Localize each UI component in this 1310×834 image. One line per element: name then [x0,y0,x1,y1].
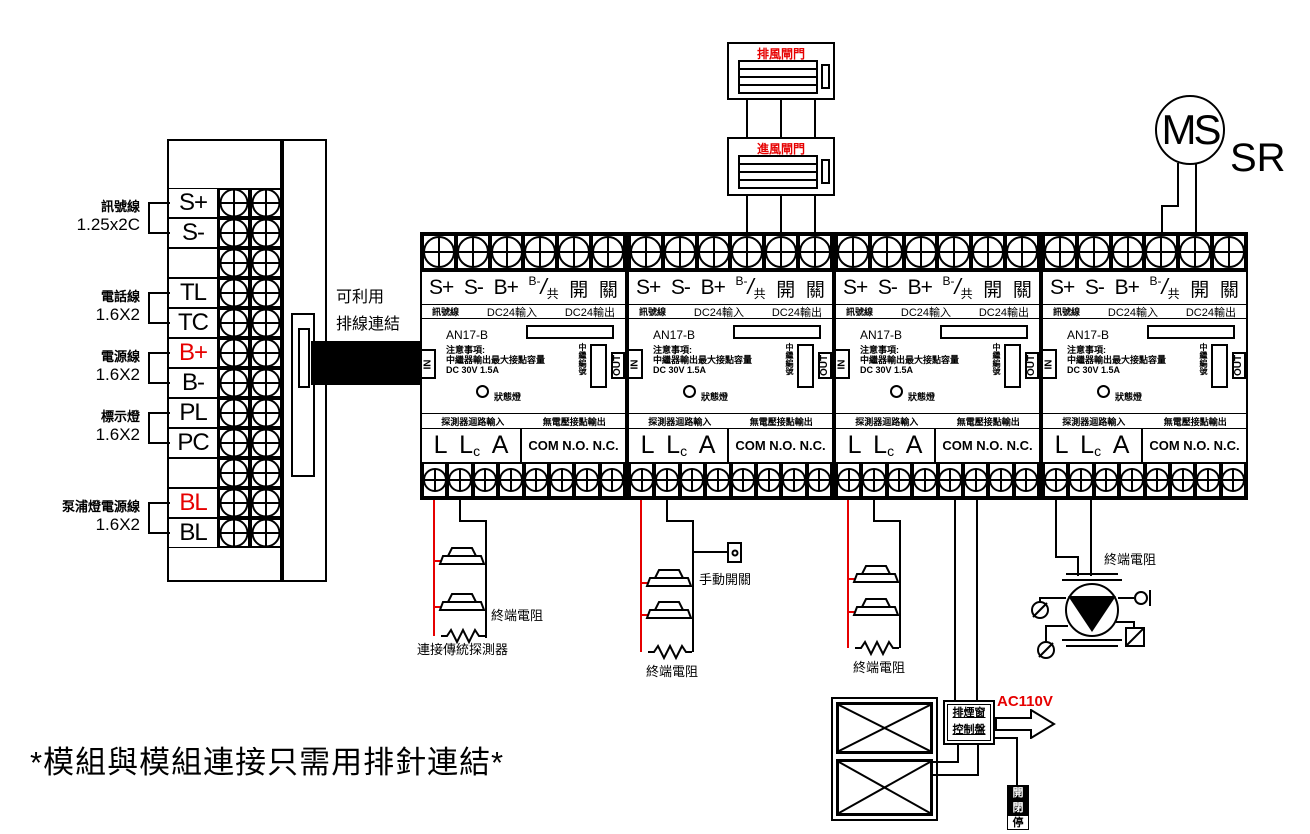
contact-terminals: COM N.O. N.C. [936,429,1039,462]
terminal-label: B+ [494,276,518,300]
conventional-detectors-label: 連接傳統探測器 [417,639,508,658]
v [780,238,782,266]
v [975,470,977,490]
status-led [890,385,903,398]
relay-module: S+ S- B+ B-/共 開 關 訊號線 DC24輸入 DC24輸出 AN17… [420,232,627,500]
v [233,251,235,276]
v [1059,238,1061,266]
module-bottom-terminal-labels: L Lc A COM N.O. N.C. [1043,428,1246,462]
damper-handle [821,64,830,89]
span: A [492,431,509,460]
gsize: 1.6X2 [28,365,140,385]
screw-terminal [250,368,282,398]
subc: c [887,443,894,459]
screw-terminal [250,278,282,308]
v [920,238,922,266]
screw-terminal [218,248,250,278]
screw-terminal [680,462,705,498]
module-slot [1147,325,1235,339]
control-panel-line2: 控制盤 [948,722,990,739]
terminal-label: BL [168,488,218,518]
v [535,470,537,490]
screw-terminal [250,428,282,458]
resistor-symbol [855,639,899,657]
v [1105,470,1107,490]
screw-terminal [250,338,282,368]
v [472,238,474,266]
out-port: OUT [1025,352,1039,379]
screw-terminal [250,398,282,428]
fn: B- [528,274,540,288]
rot: IN [1044,359,1055,369]
screw-terminal [1111,234,1145,270]
dc24-in-label: DC24輸入 [694,304,744,320]
module-bottom-sublabels: 探測器迴路輸入 無電壓接點輸出 [422,413,625,428]
module-bottom-sublabels: 探測器迴路輸入 無電壓接點輸出 [1043,413,1246,428]
div: 注意事項: [653,345,752,355]
gname: 標示燈 [28,406,140,425]
module-sublabels: 訊號線 DC24輸入 DC24輸出 [1043,304,1246,319]
wire [780,196,782,232]
path [854,566,898,582]
status-led [1097,385,1110,398]
wire [148,352,150,384]
wire [148,202,170,204]
terminal-label: S+ [1050,276,1074,300]
motor-type-label: SR [1230,136,1286,181]
b [740,76,816,78]
screw-terminal [591,234,625,270]
v [987,238,989,266]
open-button-label: 開 [1007,785,1029,800]
terminal-label: 開 [1190,275,1209,302]
wire-group-phone: 電話線1.6X2 [28,286,140,325]
smoke-detector-symbol [645,596,693,620]
path [647,570,691,586]
terminal-label: 關 [1013,275,1032,302]
side-panel-slot-inner [298,328,310,388]
v [953,238,955,266]
gname: 電話線 [28,286,140,305]
terminal-label-common: B-/共 [1149,274,1179,302]
screw-terminal [218,188,250,218]
screw-terminal [218,278,250,308]
v [265,491,267,516]
ribbon-cable [311,341,420,385]
screw-terminal [456,234,490,270]
module-bottom-terminal-labels: L Lc A COM N.O. N.C. [836,428,1039,462]
screw-terminal [1195,462,1220,498]
screw-terminal [781,462,806,498]
v [607,238,609,266]
terminal-label: TC [168,308,218,338]
loop-terminals: L Lc A [1043,429,1143,462]
dry-contact-output-label: 無電壓接點輸出 [524,415,626,428]
v [265,401,267,426]
wire [873,520,901,522]
polyline [855,642,899,654]
screw-terminal [1014,462,1039,498]
module-bottom-terminal-strip [629,462,832,498]
status-led [683,385,696,398]
loop-terminals: L Lc A [629,429,729,462]
screw-terminal [870,234,904,270]
screw-terminal [218,338,250,368]
v [1228,238,1230,266]
div: 中繼器輸出最大接點容量 [446,355,545,365]
voltage-label: AC110V [997,693,1053,710]
screw-terminal [1170,462,1195,498]
wire [148,412,150,444]
wire [148,382,170,384]
ribbon-note-line1: 可利用 [336,283,384,307]
wire [1016,737,1018,785]
wire [148,412,170,414]
wire [148,322,170,324]
v [873,470,875,490]
wire [873,500,875,522]
screw-terminal [473,462,498,498]
rot: OUT [613,355,624,376]
terminal-label: S- [1085,276,1104,300]
screw-terminal [218,398,250,428]
div: DC 30V 1.5A [860,365,959,375]
gsize: 1.6X2 [28,425,140,445]
wire [995,737,1018,739]
fn: B- [1149,274,1161,288]
detector-loop-input-label: 探測器迴路輸入 [836,415,938,428]
relay-number-slot [1211,344,1228,388]
module-note: 注意事項: 中繼器輸出最大接點容量 DC 30V 1.5A [1067,345,1166,375]
wire [1055,556,1079,558]
signal-line-label: 訊號線 [846,305,873,318]
div: 注意事項: [1067,345,1166,355]
subc: c [473,443,480,459]
v [1232,470,1234,490]
module-sublabels: 訊號線 DC24輸入 DC24輸出 [422,304,625,319]
power-arrow [995,709,1057,739]
out-port: OUT [818,352,832,379]
terminal-label-common: B-/共 [735,274,765,302]
module-bottom-terminal-labels: L Lc A COM N.O. N.C. [422,428,625,462]
smoke-detector-symbol [438,588,486,612]
svg [839,705,930,751]
smoke-detector-symbol [438,542,486,566]
screw-terminal [988,462,1013,498]
wire [976,500,978,700]
v [438,238,440,266]
module-slot [733,325,821,339]
b [740,84,816,86]
v [506,238,508,266]
relay-module: S+ S- B+ B-/共 開 關 訊號線 DC24輸入 DC24輸出 AN17… [834,232,1041,500]
wire [1195,163,1197,232]
terminal-label: B+ [168,338,218,368]
v [924,470,926,490]
screw-terminal [422,234,456,270]
screw-terminal [490,234,524,270]
terminal-label: TL [168,278,218,308]
module-terminal-labels: S+ S- B+ B-/共 開 關 [422,270,625,304]
module-slot [526,325,614,339]
screw-terminal [887,462,912,498]
exhaust-damper: 排風閘門 [727,42,835,100]
wire [666,520,694,522]
v [1025,470,1027,490]
manual-switch-symbol [727,542,742,563]
wire [954,500,956,700]
relay-number-slot [590,344,607,388]
screw-terminal [218,458,250,488]
terminal-label: PC [168,428,218,458]
screw-terminal [218,428,250,458]
dc24-out-label: DC24輸出 [979,304,1029,320]
smoke-detector-symbol [645,564,693,588]
polyline [648,646,692,658]
terminal-label: S- [878,276,897,300]
contact-terminals: COM N.O. N.C. [1143,429,1246,462]
stop-button-label: 停 [1007,815,1029,830]
v [265,281,267,306]
screw-terminal [971,234,1005,270]
module-sublabels: 訊號線 DC24輸入 DC24輸出 [836,304,1039,319]
smoke-detector-symbol [852,560,900,584]
v [852,238,854,266]
rot: OUT [820,355,831,376]
rot: IN [837,359,848,369]
wire [148,352,170,354]
screw-terminal [574,462,599,498]
screw-terminal [836,234,870,270]
smoke-window-1 [836,702,933,754]
screw-terminal [697,234,731,270]
v [886,238,888,266]
v [265,251,267,276]
wire [148,292,150,324]
v [233,521,235,546]
contact-terminals: COM N.O. N.C. [729,429,832,462]
dry-contact-output-label: 無電壓接點輸出 [1145,415,1247,428]
v [233,401,235,426]
module-body: AN17-B 注意事項: 中繼器輸出最大接點容量 DC 30V 1.5A IN … [1043,319,1246,413]
module-body: AN17-B 注意事項: 中繼器輸出最大接點容量 DC 30V 1.5A IN … [629,319,832,413]
wire-red [847,500,849,648]
screw-terminal [1119,462,1144,498]
relay-module: S+ S- B+ B-/共 開 關 訊號線 DC24輸入 DC24輸出 AN17… [627,232,834,500]
v [793,470,795,490]
v [459,470,461,490]
v [814,238,816,266]
relay-number-label: 中繼編號 [784,343,795,375]
smoke-detector-symbol [852,593,900,617]
v [1127,238,1129,266]
gname: 電源線 [28,346,140,365]
fn: B- [942,274,954,288]
span: A [906,431,923,460]
gsize: 1.6X2 [28,515,140,535]
module-bottom-terminal-strip [836,462,1039,498]
path [440,594,484,610]
wire-red [433,500,435,636]
wire [1090,500,1092,576]
screw-terminal [836,462,861,498]
screw-terminal [1043,234,1077,270]
status-led-label: 狀態燈 [1115,390,1142,403]
terminal-label: 開 [983,275,1002,302]
wire [148,202,150,234]
rot: IN [630,359,641,369]
screw-terminal [1178,234,1212,270]
screw-terminal [764,234,798,270]
detector-loop-input-label: 探測器迴路輸入 [1043,415,1145,428]
screw-terminal [705,462,730,498]
terminal-label: 開 [776,275,795,302]
module-top-terminal-strip [629,234,832,270]
screw-terminal [250,248,282,278]
span: A [699,431,716,460]
terminal-label: 關 [599,275,618,302]
v [746,238,748,266]
screw-terminal [912,462,937,498]
terminal-column-1 [218,188,250,548]
path [854,599,898,615]
subc: c [1094,443,1101,459]
screw-terminal [557,234,591,270]
subc: c [680,443,687,459]
screw-terminal [524,462,549,498]
terminal-label: BL [168,518,218,548]
rot: OUT [1234,355,1245,376]
terminal-label [168,458,218,488]
wire [957,745,959,763]
module-terminal-labels: S+ S- B+ B-/共 開 關 [629,270,832,304]
screw-terminal [250,188,282,218]
gsize: 1.6X2 [28,305,140,325]
screw-terminal [498,462,523,498]
wire [814,196,816,232]
v [434,470,436,490]
damper-louver [738,155,818,189]
screw-terminal [1005,234,1039,270]
in-port: IN [420,349,436,379]
span: A [1113,431,1130,460]
wire [692,551,729,553]
wire [1161,205,1179,207]
v [265,311,267,336]
dry-contact-output-label: 無電壓接點輸出 [938,415,1040,428]
screw-terminal [549,462,574,498]
wire [666,500,668,522]
wire-group-signal: 訊號線1.25x2C [28,196,140,235]
module-top-terminal-strip [422,234,625,270]
path [440,548,484,564]
module-bottom-terminal-strip [1043,462,1246,498]
signal-line-label: 訊號線 [1053,305,1080,318]
fn: B- [735,274,747,288]
terminal-label: S- [671,276,690,300]
v [1131,470,1133,490]
v [1021,238,1023,266]
screw-terminal [654,462,679,498]
span: Lc [459,431,480,460]
signal-line-label: 訊號線 [432,305,459,318]
damper-actuator-symbol [1014,566,1164,668]
screw-terminal [904,234,938,270]
footnote: *模組與模組連接只需用排針連結* [30,737,504,782]
screw-terminal [730,234,764,270]
gname: 泵浦燈電源線 [28,496,140,515]
module-model: AN17-B [860,329,902,342]
span: L [666,431,680,459]
wire [899,520,901,648]
wire [977,745,979,776]
screw-terminal [798,234,832,270]
div: DC 30V 1.5A [446,365,545,375]
path [647,602,691,618]
b [740,163,816,165]
terminal-label: S+ [636,276,660,300]
dc24-out-label: DC24輸出 [565,304,615,320]
signal-line-label: 訊號線 [639,305,666,318]
wire [148,292,170,294]
v [539,238,541,266]
screw-terminal [218,488,250,518]
span: L [873,431,887,459]
terminal-label: 關 [806,275,825,302]
smoke-window-2 [836,759,933,816]
wiring-diagram: S+ S- TL TC B+ B- PL PC BL BL 訊號線1.25x2C… [0,0,1310,834]
v [233,491,235,516]
relay-number-slot [1004,344,1021,388]
module-terminal-labels: S+ S- B+ B-/共 開 關 [836,270,1039,304]
dc24-in-label: DC24輸入 [1108,304,1158,320]
module-top-terminal-strip [1043,234,1246,270]
module-model: AN17-B [446,329,488,342]
v [561,470,563,490]
terminal-label: S- [464,276,483,300]
v [691,470,693,490]
wire [459,520,487,522]
v [848,470,850,490]
fd: 共 [754,287,766,301]
resistor-symbol [648,643,692,661]
screw-terminal [756,462,781,498]
v [611,470,613,490]
screw-terminal [937,234,971,270]
v [1182,470,1184,490]
module-note: 注意事項: 中繼器輸出最大接點容量 DC 30V 1.5A [446,345,545,375]
screw-terminal [250,518,282,548]
screw-terminal [218,368,250,398]
dc24-in-label: DC24輸入 [487,304,537,320]
span: L [459,431,473,459]
v [949,470,951,490]
span: L [641,431,655,460]
screw-terminal [1094,462,1119,498]
intake-damper: 進風閘門 [727,137,835,196]
v [1207,470,1209,490]
module-bottom-terminal-strip [422,462,625,498]
v [1080,470,1082,490]
wire [814,100,816,137]
gname: 訊號線 [28,196,140,215]
status-led-label: 狀態燈 [908,390,935,403]
in-port: IN [834,349,850,379]
screw-terminal [629,234,663,270]
v [818,470,820,490]
wire [148,502,170,504]
div: 注意事項: [860,345,959,355]
